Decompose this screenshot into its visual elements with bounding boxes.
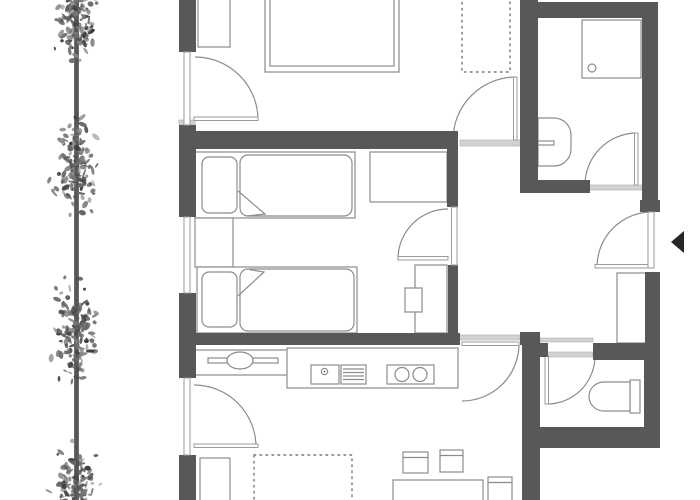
leaf <box>60 39 65 43</box>
rug <box>254 455 352 500</box>
wall <box>523 180 590 193</box>
door-arc <box>547 356 595 404</box>
chair <box>488 477 512 500</box>
entrance-arrow-icon <box>671 231 684 253</box>
leaf <box>92 343 98 349</box>
stool <box>405 288 422 312</box>
wall <box>642 3 658 202</box>
leaf <box>52 296 61 303</box>
wall <box>538 2 658 18</box>
door-leaf <box>194 117 258 121</box>
leaf <box>46 176 52 184</box>
wall <box>522 345 540 500</box>
door-arc <box>462 344 519 401</box>
furniture <box>195 0 646 500</box>
leaf <box>68 371 72 374</box>
door-leaf <box>194 444 258 448</box>
wall <box>195 131 458 149</box>
leaf <box>91 132 101 141</box>
chair <box>403 452 428 473</box>
leaf <box>45 488 53 493</box>
wall <box>520 332 540 345</box>
leaf <box>79 337 83 344</box>
leaf <box>93 454 98 457</box>
wardrobe <box>198 0 230 47</box>
wall <box>179 455 196 500</box>
leaf <box>88 197 92 203</box>
hall-wardrobe <box>617 273 646 343</box>
wall <box>520 0 538 193</box>
wall <box>181 333 460 345</box>
leaf <box>87 1 94 8</box>
leaf <box>92 320 98 325</box>
window <box>184 378 190 455</box>
sink-drain-dot <box>324 371 326 373</box>
leaf <box>98 482 103 486</box>
desk <box>370 152 447 202</box>
wall <box>640 200 660 212</box>
leaf <box>82 47 89 55</box>
nightstand <box>195 218 233 267</box>
leaf <box>68 213 72 217</box>
leaf <box>94 1 99 6</box>
leaf <box>80 194 86 200</box>
door-leaf <box>545 356 549 404</box>
leaf <box>90 482 94 485</box>
floor-plan <box>0 0 700 500</box>
leaf <box>70 134 74 136</box>
leaf <box>59 128 66 132</box>
sofa <box>200 458 230 500</box>
window <box>184 217 190 293</box>
entrance-door-leaf <box>648 212 654 268</box>
door-leaf <box>398 257 448 261</box>
leaf <box>54 47 57 51</box>
leaf <box>63 275 67 280</box>
leaf <box>64 294 71 301</box>
door-leaf <box>514 77 518 140</box>
wall <box>179 125 196 217</box>
dotted-closet <box>462 0 510 72</box>
oval-sink <box>227 352 253 369</box>
leaf <box>68 151 73 156</box>
door-arc <box>398 209 448 259</box>
leaf <box>93 0 98 1</box>
chair <box>440 450 463 472</box>
wall <box>448 265 458 333</box>
leaf <box>68 284 72 292</box>
threshold <box>540 338 593 342</box>
threshold <box>458 335 520 340</box>
door-arc <box>585 133 637 185</box>
leaf <box>70 494 74 497</box>
door-leaf <box>635 133 639 185</box>
drainer <box>341 365 366 384</box>
double-bed-mattress <box>270 0 394 66</box>
leaf <box>58 376 61 382</box>
wall <box>540 427 660 448</box>
leaf <box>48 354 54 363</box>
wall <box>447 143 458 207</box>
leaf <box>63 369 68 373</box>
tree-trunk-core <box>75 0 77 500</box>
leaf <box>70 378 73 384</box>
leaf <box>94 163 98 169</box>
leaf <box>78 209 87 216</box>
threshold <box>545 352 593 357</box>
leaf <box>61 325 66 330</box>
faucet <box>538 141 554 145</box>
door-leaf <box>462 342 519 346</box>
door-arc <box>597 212 652 267</box>
wall <box>645 272 660 352</box>
glazing <box>184 52 654 455</box>
leaf <box>56 171 62 176</box>
pillow <box>202 272 237 327</box>
wall <box>179 0 196 52</box>
tree-row <box>45 0 103 500</box>
shower-tray <box>582 20 641 78</box>
toilet-cistern <box>630 380 640 413</box>
leaf <box>89 208 94 213</box>
leaf <box>67 123 73 130</box>
wall <box>540 343 548 357</box>
door-arc <box>194 385 256 447</box>
leaf <box>90 487 94 495</box>
balcony-door-glazing <box>184 52 190 125</box>
dining-table <box>393 480 483 500</box>
door-leaf <box>595 265 652 269</box>
leaf <box>52 191 58 197</box>
door-closed-leaf <box>452 207 458 265</box>
toilet-bowl <box>589 382 630 411</box>
door-arc <box>453 77 516 140</box>
leaf <box>79 376 87 381</box>
leaf <box>90 38 95 47</box>
foliage-cluster <box>45 438 103 500</box>
markers <box>671 231 684 253</box>
foliage-cluster <box>46 113 101 217</box>
leaf <box>59 291 64 295</box>
threshold <box>460 140 520 146</box>
doors <box>194 57 652 448</box>
floor-plan-drawing <box>0 0 700 500</box>
leaf <box>53 285 58 291</box>
pillow <box>202 157 237 213</box>
leaf <box>83 287 87 291</box>
door-arc <box>195 57 258 120</box>
